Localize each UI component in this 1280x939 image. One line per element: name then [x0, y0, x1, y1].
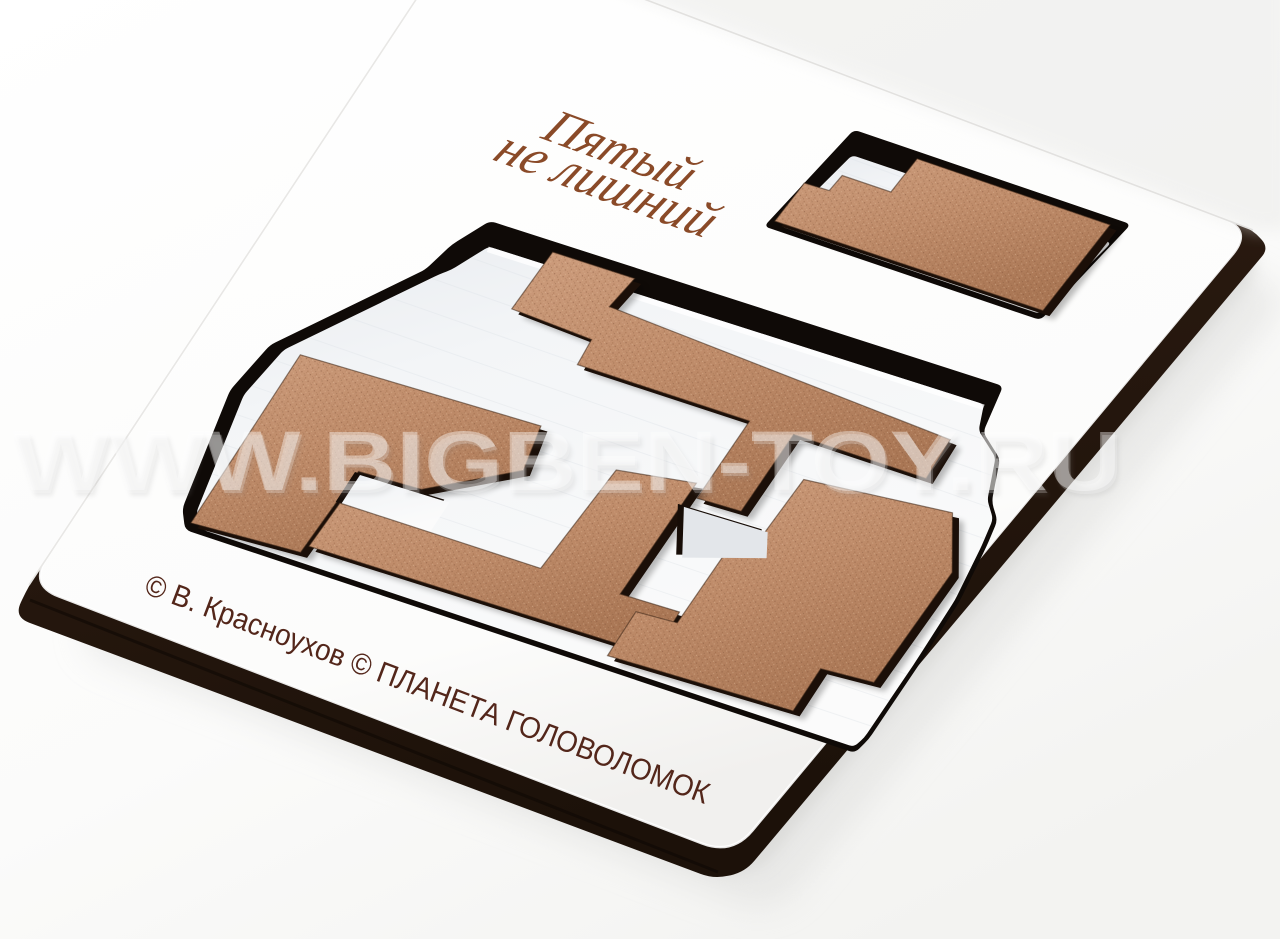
svg-text:WWW.BIGBEN-TOY.RU: WWW.BIGBEN-TOY.RU	[15, 417, 1123, 511]
